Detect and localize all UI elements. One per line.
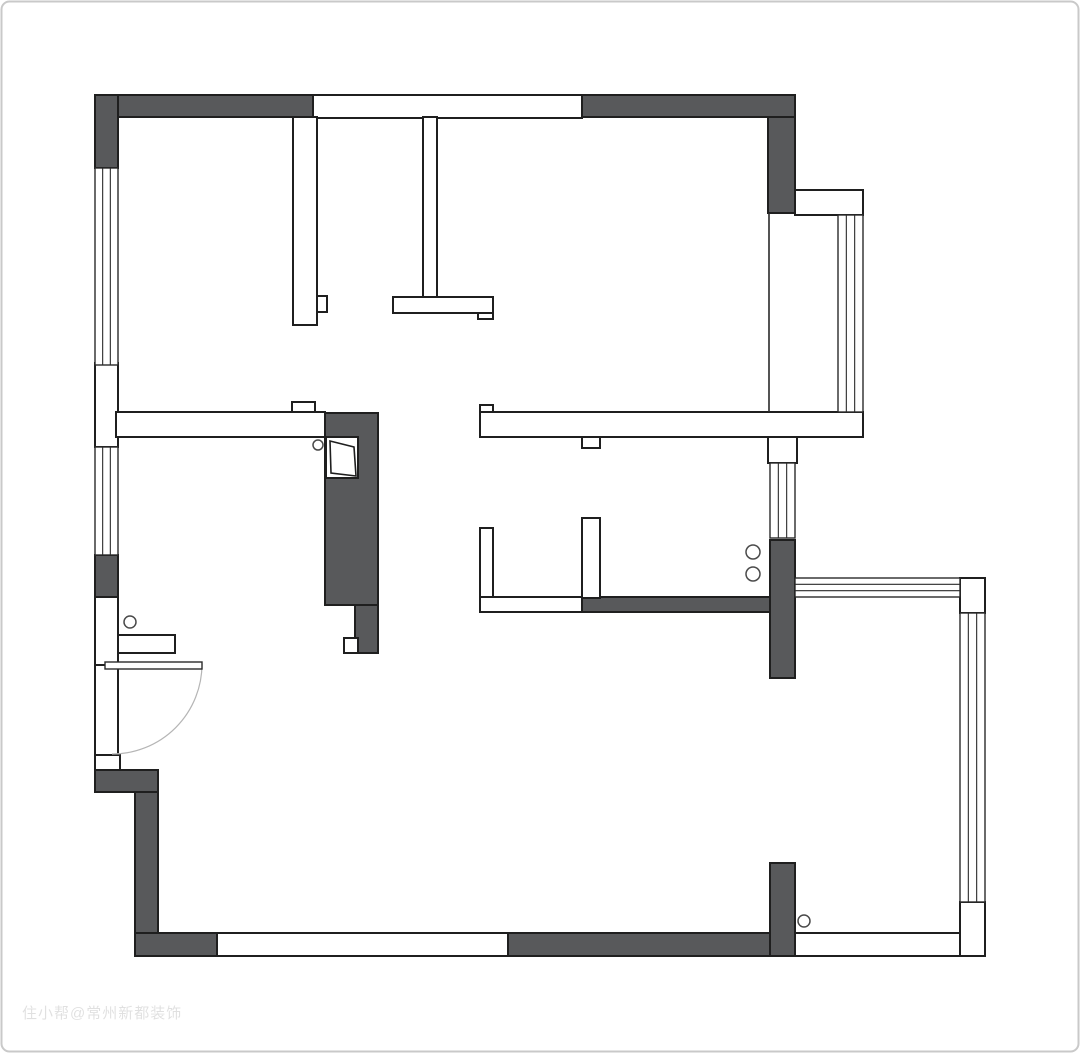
window: [838, 215, 863, 412]
dark-wall-segment: [582, 597, 770, 612]
dark-wall-segment: [508, 933, 770, 956]
window: [770, 463, 795, 538]
windows-layer: [95, 168, 985, 902]
light-wall-segment: [292, 402, 315, 412]
floor-plan: 住小帮@常州新都装饰: [0, 0, 1080, 1053]
light-wall-segment: [480, 405, 493, 412]
light-wall-segment: [317, 296, 327, 312]
window: [795, 578, 960, 597]
light-wall-segment: [95, 597, 118, 665]
dark-wall-segment: [768, 117, 795, 213]
light-wall-segment: [95, 363, 118, 447]
canvas-border: [2, 2, 1079, 1052]
fixture-circle: [124, 616, 136, 628]
fixture-circle: [798, 915, 810, 927]
window: [95, 168, 118, 365]
fixture-circle: [746, 567, 760, 581]
details-layer: [105, 213, 810, 927]
light-wall-segment: [116, 412, 325, 437]
light-wall-segment: [768, 437, 797, 463]
structural-walls-layer: [95, 95, 795, 956]
dark-wall-segment: [582, 95, 795, 117]
entry-door-leaf: [105, 662, 202, 669]
light-wall-segment: [582, 518, 600, 598]
light-wall-segment: [480, 597, 582, 612]
light-wall-segment: [423, 117, 437, 297]
watermark-text: 住小帮@常州新都装饰: [22, 1005, 182, 1022]
light-wall-segment: [582, 437, 600, 448]
dark-wall-segment: [95, 95, 313, 117]
light-wall-segment: [95, 755, 120, 770]
light-wall-segment: [480, 412, 863, 437]
light-wall-segment: [478, 313, 493, 319]
dark-wall-segment: [95, 95, 118, 168]
light-wall-segment: [795, 190, 863, 215]
flue-glyph: [330, 441, 356, 476]
window: [960, 613, 985, 902]
light-wall-segment: [293, 117, 317, 325]
dark-wall-segment: [135, 792, 158, 956]
light-wall-segment: [960, 578, 985, 613]
fixture-circle: [746, 545, 760, 559]
window: [95, 447, 118, 555]
light-wall-segment: [344, 638, 358, 653]
light-wall-segment: [960, 902, 985, 956]
light-wall-segment: [795, 933, 985, 956]
fixture-circle: [313, 440, 323, 450]
light-wall-segment: [393, 297, 493, 313]
light-wall-segment: [95, 665, 118, 755]
dark-wall-segment: [135, 933, 217, 956]
dark-wall-segment: [95, 770, 158, 792]
light-wall-segment: [118, 635, 175, 653]
dark-wall-segment: [95, 555, 118, 597]
dark-wall-segment: [770, 540, 795, 678]
floor-plan-canvas: 住小帮@常州新都装饰: [0, 0, 1080, 1053]
light-wall-segment: [313, 95, 582, 118]
light-wall-segment: [217, 933, 508, 956]
canvas-border-layer: [2, 2, 1079, 1052]
entry-door-swing-arc: [112, 664, 202, 754]
dark-wall-segment: [770, 863, 795, 956]
